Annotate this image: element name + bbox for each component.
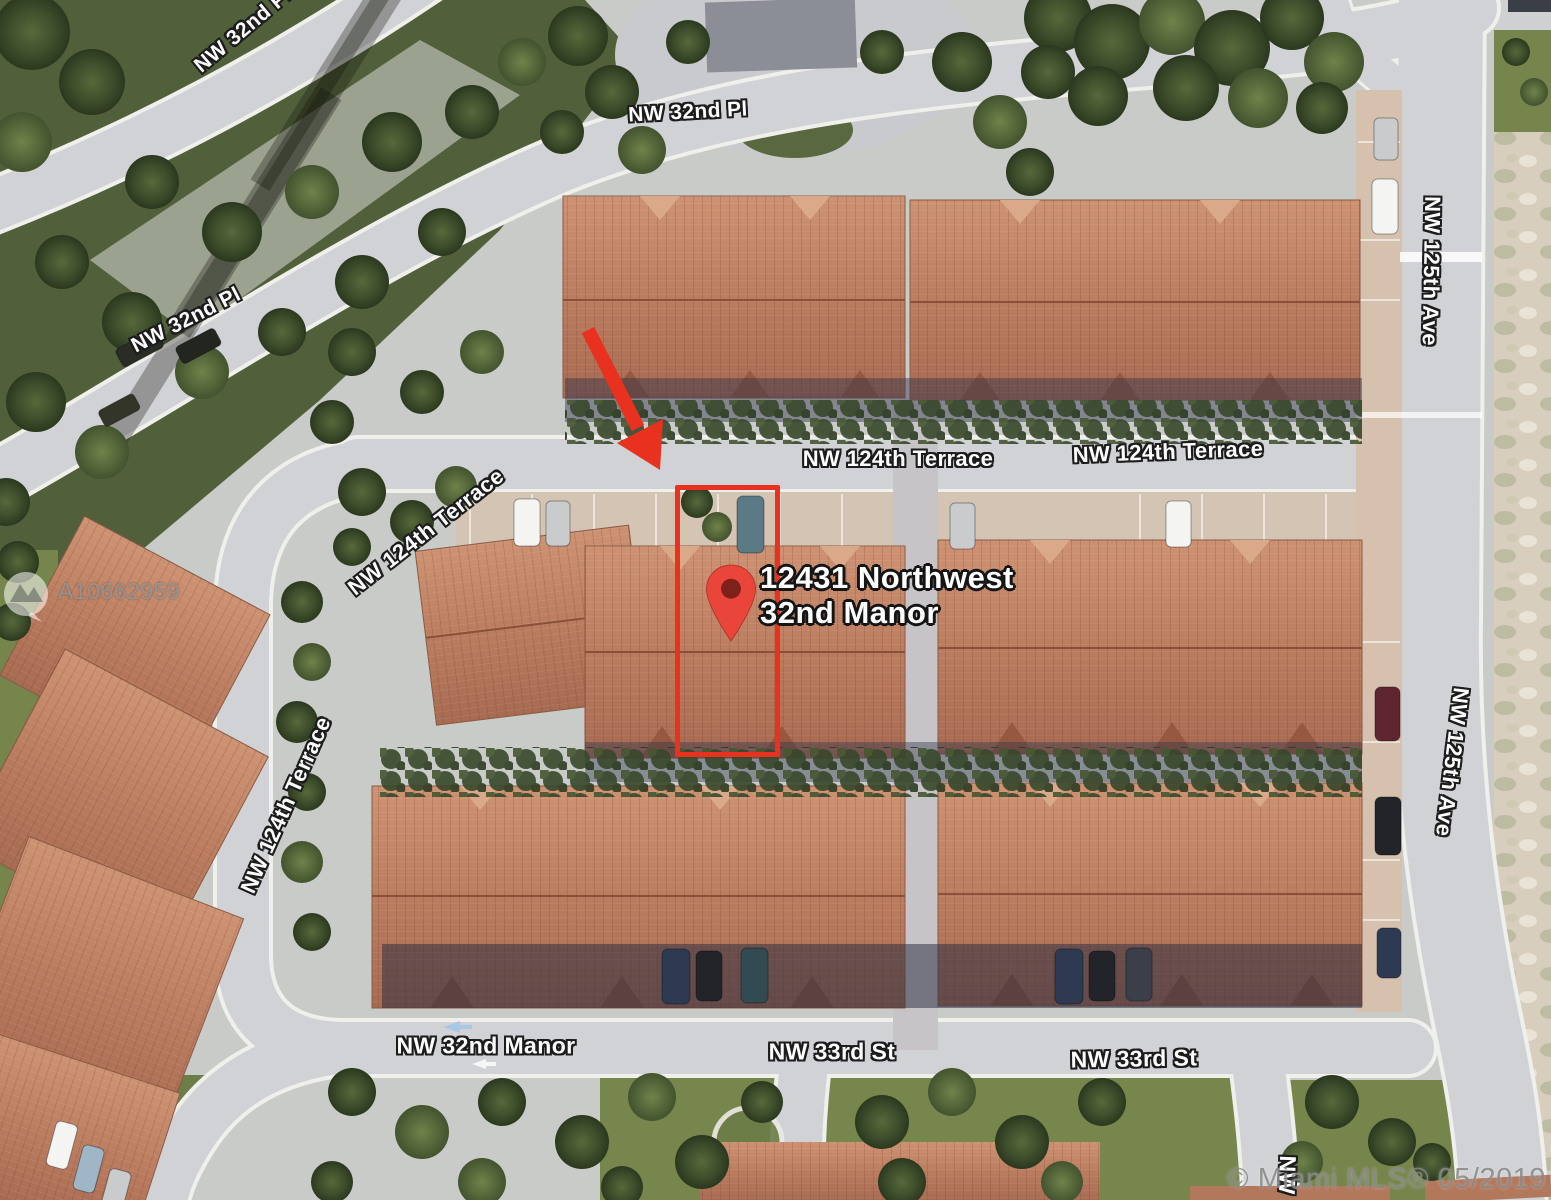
street-label-nw-125th-ave-upper: NW 125th Ave (1419, 196, 1444, 346)
street-label-nw-32nd-manor: NW 32nd Manor (397, 1035, 576, 1058)
map-canvas[interactable]: 12431 Northwest 32nd Manor NW 32nd Pl NW… (0, 0, 1551, 1200)
marker-address-line1: 12431 Northwest (760, 560, 1014, 595)
street-label-nw-33rd-st-east: NW 33rd St (1070, 1046, 1197, 1071)
mls-watermark-badge: A10662959 (2, 570, 212, 620)
marker-address-line2: 32nd Manor (760, 595, 1014, 630)
map-pin-icon[interactable] (705, 564, 757, 642)
photo-camera-icon (2, 570, 52, 622)
marker-address-label: 12431 Northwest 32nd Manor (760, 560, 1014, 630)
street-label-nw-124th-terrace-center: NW 124th Terrace (803, 448, 994, 470)
copyright-watermark: © Miami MLS® 05/2019 (1227, 1163, 1546, 1196)
highlight-arrow (560, 300, 680, 485)
street-label-nw-33rd-st-west: NW 33rd St (769, 1041, 896, 1064)
mls-id-text: A10662959 (58, 578, 180, 605)
